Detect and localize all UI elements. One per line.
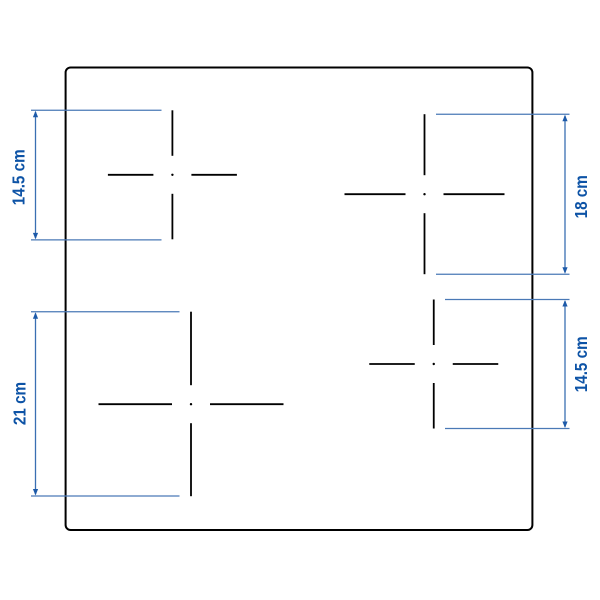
svg-text:14.5 cm: 14.5 cm	[10, 149, 29, 205]
svg-text:21 cm: 21 cm	[11, 382, 30, 425]
svg-text:18 cm: 18 cm	[572, 175, 591, 218]
svg-text:14.5 cm: 14.5 cm	[572, 336, 591, 392]
